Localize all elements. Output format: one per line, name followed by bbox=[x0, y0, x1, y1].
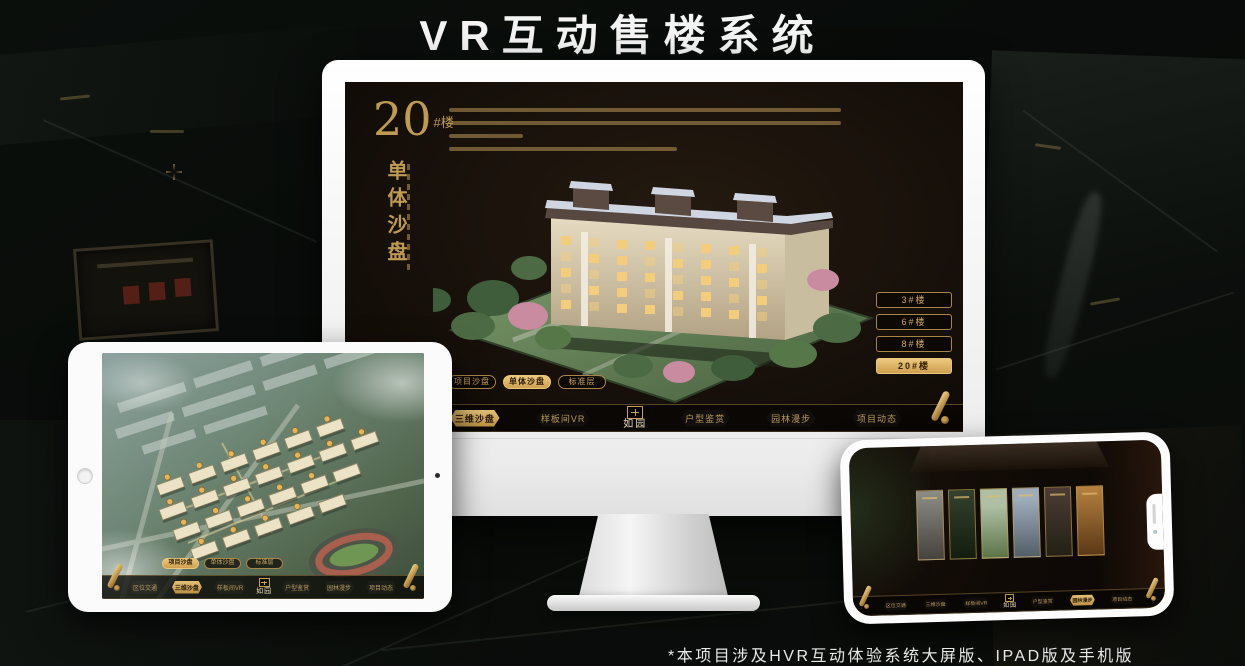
tablet-sandtable-subtabs: 项目沙盘 单体沙盘 标准层 bbox=[162, 558, 283, 569]
phone-notch bbox=[1146, 494, 1164, 550]
building-selector: 3#楼 6#楼 8#楼 20#楼 bbox=[876, 292, 952, 380]
building-button-3[interactable]: 3#楼 bbox=[876, 292, 952, 308]
vertical-subtitle-decor bbox=[407, 164, 410, 274]
camera-icon bbox=[1153, 530, 1157, 534]
home-button[interactable] bbox=[77, 468, 93, 484]
nav-item-project-news[interactable]: 项目动态 bbox=[364, 581, 398, 594]
phone-device: 区位交通 三维沙盘 样板间VR 如园 户型鉴赏 园林漫步 项目动态 bbox=[839, 431, 1174, 624]
subtab-single-sandtable[interactable]: 单体沙盘 bbox=[503, 375, 551, 389]
gallery-panel-garden[interactable] bbox=[1044, 486, 1073, 557]
gallery-panel-courtyard[interactable] bbox=[948, 489, 977, 560]
building-button-6[interactable]: 6#楼 bbox=[876, 314, 952, 330]
subtab-single-sandtable[interactable]: 单体沙盘 bbox=[204, 558, 241, 569]
brand-seal-icon bbox=[259, 578, 270, 587]
subtab-standard-floor[interactable]: 标准层 bbox=[246, 558, 283, 569]
building-button-20[interactable]: 20#楼 bbox=[876, 358, 952, 374]
brand-logo: 如园 bbox=[623, 406, 647, 431]
monitor-stand bbox=[577, 514, 730, 598]
sandtable-subtabs: 项目沙盘 单体沙盘 标准层 bbox=[448, 375, 606, 389]
tablet-screen: 项目沙盘 单体沙盘 标准层 区位交通 三维沙盘 样板间VR 如园 户型鉴赏 园林… bbox=[102, 353, 424, 599]
building-heading: 20#楼 bbox=[373, 96, 454, 142]
brand-logo: 如园 bbox=[256, 578, 272, 595]
page-title: VR互动售楼系统 bbox=[0, 2, 1245, 63]
nav-item-showroom-vr[interactable]: 样板间VR bbox=[961, 597, 991, 609]
nav-item-3d-sandtable[interactable]: 三维沙盘 bbox=[170, 581, 204, 594]
nav-item-showroom-vr[interactable]: 样板间VR bbox=[212, 581, 248, 594]
nav-item-floorplans[interactable]: 户型鉴赏 bbox=[1029, 595, 1057, 607]
gallery-panel-building[interactable] bbox=[1012, 487, 1041, 558]
brand-logo: 如园 bbox=[1003, 594, 1017, 610]
section-title-vertical: 单体沙盘 bbox=[381, 160, 410, 268]
speaker-icon bbox=[1152, 504, 1156, 524]
brand-seal-icon bbox=[627, 406, 643, 419]
nav-item-showroom-vr[interactable]: 样板间VR bbox=[533, 410, 594, 427]
building-button-8[interactable]: 8#楼 bbox=[876, 336, 952, 352]
gallery-panel-landscape[interactable] bbox=[980, 488, 1009, 559]
footnote-text: *本项目涉及HVR互动体验系统大屏版、IPAD版及手机版 bbox=[668, 642, 1134, 666]
tablet-device: 项目沙盘 单体沙盘 标准层 区位交通 三维沙盘 样板间VR 如园 户型鉴赏 园林… bbox=[68, 342, 452, 612]
nav-item-3d-sandtable[interactable]: 三维沙盘 bbox=[447, 410, 503, 427]
brand-seal-icon bbox=[1005, 594, 1014, 602]
monitor-base bbox=[547, 595, 760, 611]
scroll-menu-icon[interactable] bbox=[1148, 588, 1158, 608]
nav-item-3d-sandtable[interactable]: 三维沙盘 bbox=[921, 598, 949, 610]
scroll-menu-icon[interactable] bbox=[110, 575, 120, 599]
nav-item-project-news[interactable]: 项目动态 bbox=[849, 410, 905, 427]
subtab-standard-floor[interactable]: 标准层 bbox=[558, 375, 606, 389]
nav-item-project-news[interactable]: 项目动态 bbox=[1108, 593, 1136, 605]
bg-plaque bbox=[73, 239, 219, 341]
scene-gallery bbox=[916, 485, 1105, 560]
tablet-bottom-nav: 区位交通 三维沙盘 样板间VR 如园 户型鉴赏 园林漫步 项目动态 bbox=[102, 575, 424, 599]
promo-poster: VR互动售楼系统 20#楼 单体沙盘 bbox=[0, 0, 1245, 666]
subtab-project-sandtable[interactable]: 项目沙盘 bbox=[162, 558, 199, 569]
nav-item-garden-walk[interactable]: 园林漫步 bbox=[763, 410, 819, 427]
bg-aerial-photo bbox=[978, 50, 1245, 459]
nav-item-floorplans[interactable]: 户型鉴赏 bbox=[677, 410, 733, 427]
nav-item-location[interactable]: 区位交通 bbox=[882, 599, 910, 611]
nav-item-floorplans[interactable]: 户型鉴赏 bbox=[280, 581, 314, 594]
phone-screen: 区位交通 三维沙盘 样板间VR 如园 户型鉴赏 园林漫步 项目动态 bbox=[849, 440, 1166, 617]
scroll-menu-icon[interactable] bbox=[935, 404, 947, 432]
subtab-project-sandtable[interactable]: 项目沙盘 bbox=[448, 375, 496, 389]
camera-icon bbox=[435, 473, 440, 478]
scroll-menu-icon[interactable] bbox=[406, 575, 416, 599]
building-number: 20 bbox=[373, 96, 432, 142]
interior-ceiling-beam bbox=[909, 441, 1110, 473]
nav-item-garden-walk[interactable]: 园林漫步 bbox=[1068, 594, 1096, 606]
scroll-menu-icon[interactable] bbox=[861, 596, 871, 616]
nav-item-garden-walk[interactable]: 园林漫步 bbox=[322, 581, 356, 594]
nav-item-location[interactable]: 区位交通 bbox=[128, 581, 162, 594]
gallery-panel-livingroom[interactable] bbox=[1076, 485, 1105, 556]
gallery-panel-interior[interactable] bbox=[916, 490, 945, 561]
